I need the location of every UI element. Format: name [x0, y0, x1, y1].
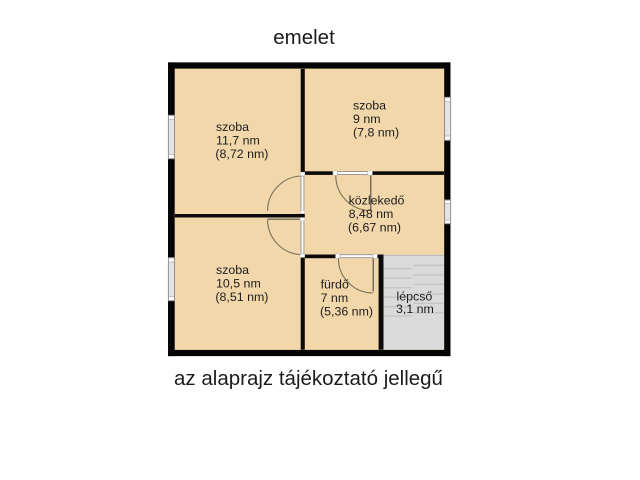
- svg-text:8,48 nm: 8,48 nm: [349, 207, 394, 221]
- svg-text:(8,72 nm): (8,72 nm): [215, 147, 268, 161]
- svg-text:3,1 nm: 3,1 nm: [396, 302, 434, 316]
- svg-text:emelet: emelet: [273, 26, 335, 49]
- svg-text:szoba: szoba: [216, 263, 249, 277]
- svg-text:fürdő: fürdő: [321, 278, 349, 292]
- svg-text:(6,67 nm): (6,67 nm): [348, 221, 401, 235]
- svg-text:szoba: szoba: [353, 99, 386, 113]
- svg-text:(5,36 nm): (5,36 nm): [320, 305, 373, 319]
- svg-text:közlekedő: közlekedő: [349, 194, 405, 208]
- svg-text:10,5 nm: 10,5 nm: [216, 277, 261, 291]
- svg-text:11,7 nm: 11,7 nm: [216, 134, 260, 148]
- svg-text:(7,8 nm): (7,8 nm): [353, 126, 399, 140]
- svg-text:szoba: szoba: [216, 120, 249, 134]
- svg-text:7 nm: 7 nm: [321, 291, 349, 305]
- svg-text:(8,51 nm): (8,51 nm): [215, 290, 268, 304]
- svg-text:az alaprajz tájékoztató jelleg: az alaprajz tájékoztató jellegű: [174, 367, 443, 390]
- svg-text:9 nm: 9 nm: [353, 112, 381, 126]
